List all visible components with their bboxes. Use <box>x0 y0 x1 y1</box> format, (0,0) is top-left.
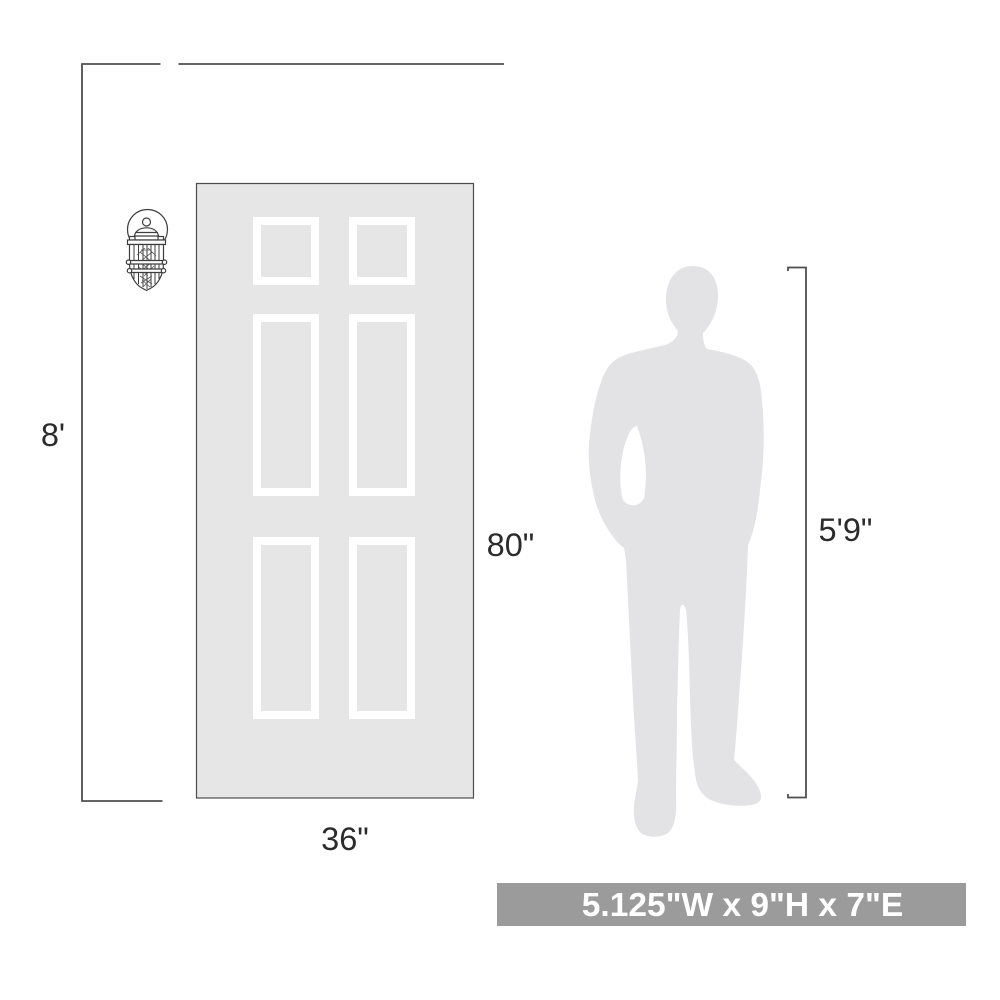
svg-text:36": 36" <box>321 821 369 857</box>
svg-text:80": 80" <box>487 527 535 563</box>
svg-text:5'9": 5'9" <box>819 512 873 548</box>
svg-text:8': 8' <box>41 417 65 453</box>
svg-text:5.125"W x 9"H x 7"E: 5.125"W x 9"H x 7"E <box>582 887 903 924</box>
